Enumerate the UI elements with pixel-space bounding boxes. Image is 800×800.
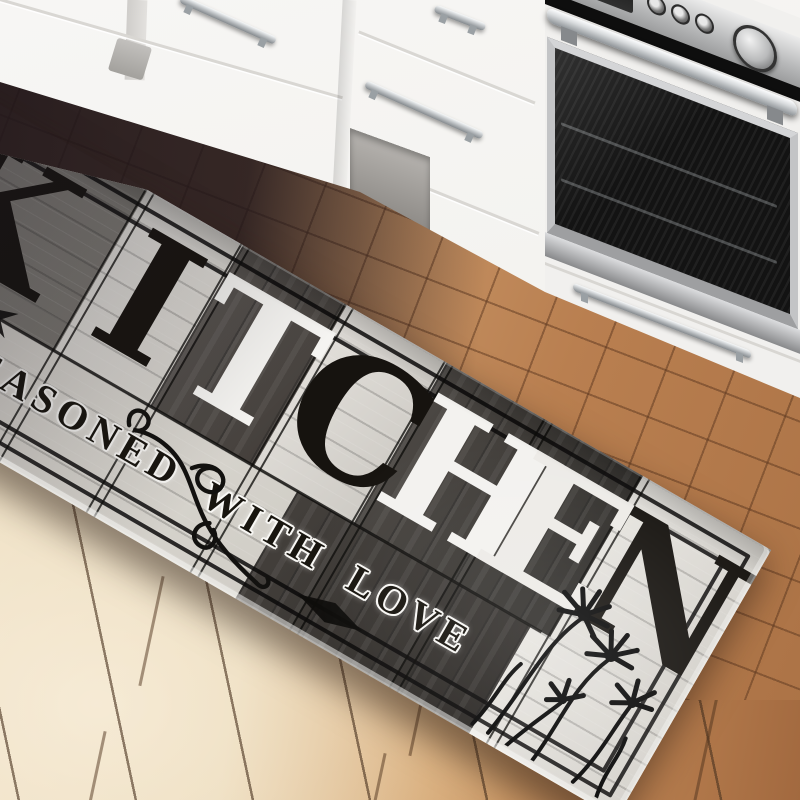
cabinet-panel-groove (0, 0, 343, 99)
drawer-handle (179, 0, 277, 45)
drawer-handle (364, 80, 484, 139)
drawer-handle (433, 5, 486, 32)
scene-root: SEASONED WITH LOVE KITCHEN (0, 0, 800, 800)
